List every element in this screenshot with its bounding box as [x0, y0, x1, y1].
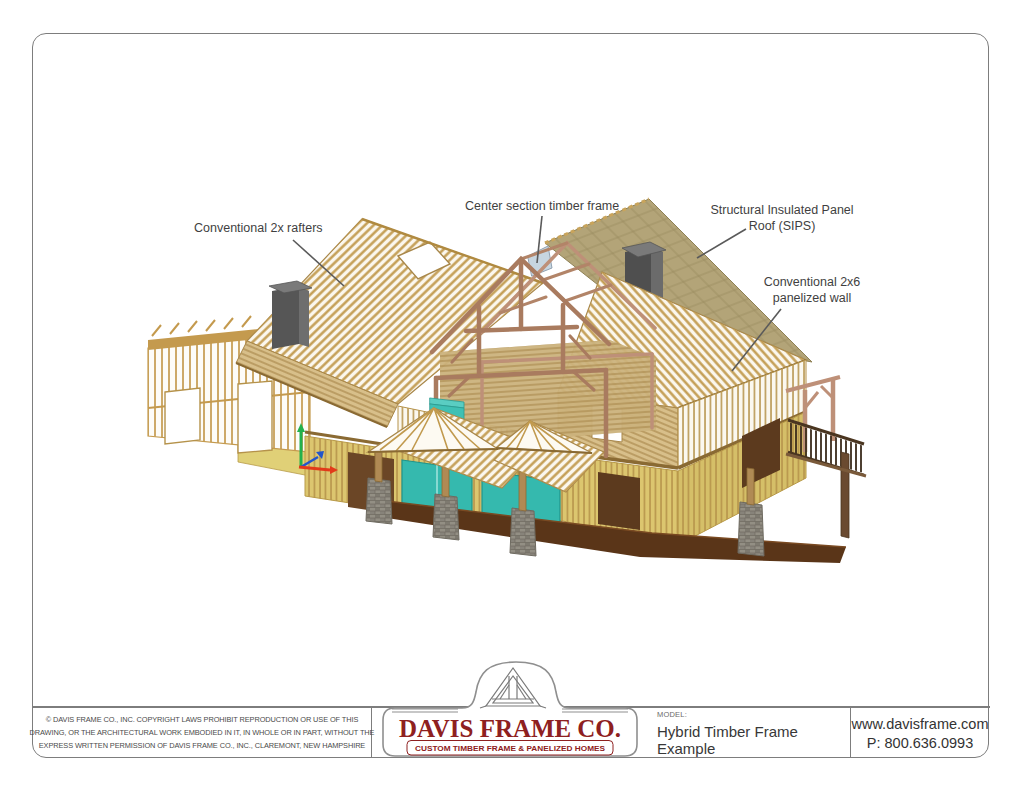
model-label: MODEL: [657, 710, 845, 719]
callout-label: Conventional 2x rafters [194, 220, 323, 236]
copyright-notice: © DAVIS FRAME CO., INC. COPYRIGHT LAWS P… [36, 709, 368, 755]
callout-sips-roof: Structural Insulated Panel Roof (SIPS) [708, 202, 856, 234]
model-value: Hybrid Timber Frame Example [657, 723, 845, 757]
logo-wordmark: DAVIS FRAME CO. [399, 715, 621, 742]
contact-box: www.davisframe.com P: 800.636.0993 [851, 710, 989, 756]
callout-conventional-2x6-panelized-wall: Conventional 2x6 panelized wall [750, 274, 874, 306]
drawing-sheet: DAVIS FRAME CO. CUSTOM TIMBER FRAME & PA… [0, 0, 1024, 791]
callout-conventional-2x-rafters: Conventional 2x rafters [194, 220, 323, 236]
website-url: www.davisframe.com [852, 716, 989, 732]
building-illustration: DAVIS FRAME CO. CUSTOM TIMBER FRAME & PA… [0, 0, 1024, 791]
callout-center-section-timber-frame: Center section timber frame [465, 198, 619, 214]
callout-label-line1: Conventional 2x6 [750, 274, 874, 290]
copyright-line1: © DAVIS FRAME CO., INC. COPYRIGHT LAWS P… [46, 713, 359, 726]
phone-number: P: 800.636.0993 [867, 735, 973, 751]
callout-label: Center section timber frame [465, 198, 619, 214]
callout-label-line2: Roof (SIPS) [708, 218, 856, 234]
model-box: MODEL: Hybrid Timber Frame Example [657, 710, 845, 756]
copyright-line2: DRAWING, OR THE ARCHITECTURAL WORK EMBOD… [30, 726, 375, 739]
logo-tagline: CUSTOM TIMBER FRAME & PANELIZED HOMES [415, 744, 606, 753]
chimney-left [269, 281, 312, 349]
copyright-line3: EXPRESS WRITTEN PERMISSION OF DAVIS FRAM… [39, 739, 365, 752]
callout-label-line2: panelized wall [750, 290, 874, 306]
callout-label-line1: Structural Insulated Panel [708, 202, 856, 218]
logo-badge: DAVIS FRAME CO. CUSTOM TIMBER FRAME & PA… [383, 662, 637, 756]
